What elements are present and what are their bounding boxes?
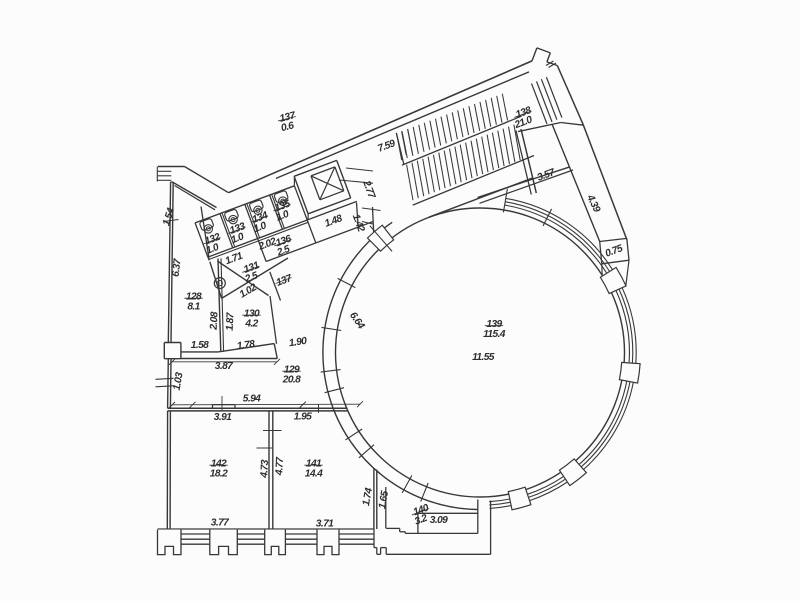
svg-text:1.95: 1.95 bbox=[294, 412, 312, 423]
svg-text:18.2: 18.2 bbox=[210, 468, 228, 479]
svg-text:4.77: 4.77 bbox=[274, 456, 286, 477]
svg-text:4.2: 4.2 bbox=[244, 318, 258, 329]
svg-text:3.91: 3.91 bbox=[214, 412, 232, 423]
svg-text:6.37: 6.37 bbox=[171, 257, 184, 278]
svg-text:3.77: 3.77 bbox=[211, 518, 230, 529]
svg-text:2.08: 2.08 bbox=[209, 311, 221, 331]
svg-text:3.87: 3.87 bbox=[215, 361, 234, 372]
svg-text:20.8: 20.8 bbox=[282, 374, 301, 385]
svg-text:4.73: 4.73 bbox=[259, 459, 271, 479]
svg-text:3.09: 3.09 bbox=[430, 515, 448, 526]
svg-text:1.87: 1.87 bbox=[225, 311, 237, 331]
svg-text:3.71: 3.71 bbox=[316, 519, 334, 530]
svg-text:8.1: 8.1 bbox=[187, 301, 200, 312]
svg-text:5.94: 5.94 bbox=[243, 394, 261, 405]
svg-text:14.4: 14.4 bbox=[305, 468, 323, 479]
svg-text:115.4: 115.4 bbox=[483, 329, 506, 340]
svg-text:11.55: 11.55 bbox=[472, 352, 495, 363]
svg-text:1.58: 1.58 bbox=[191, 340, 209, 351]
